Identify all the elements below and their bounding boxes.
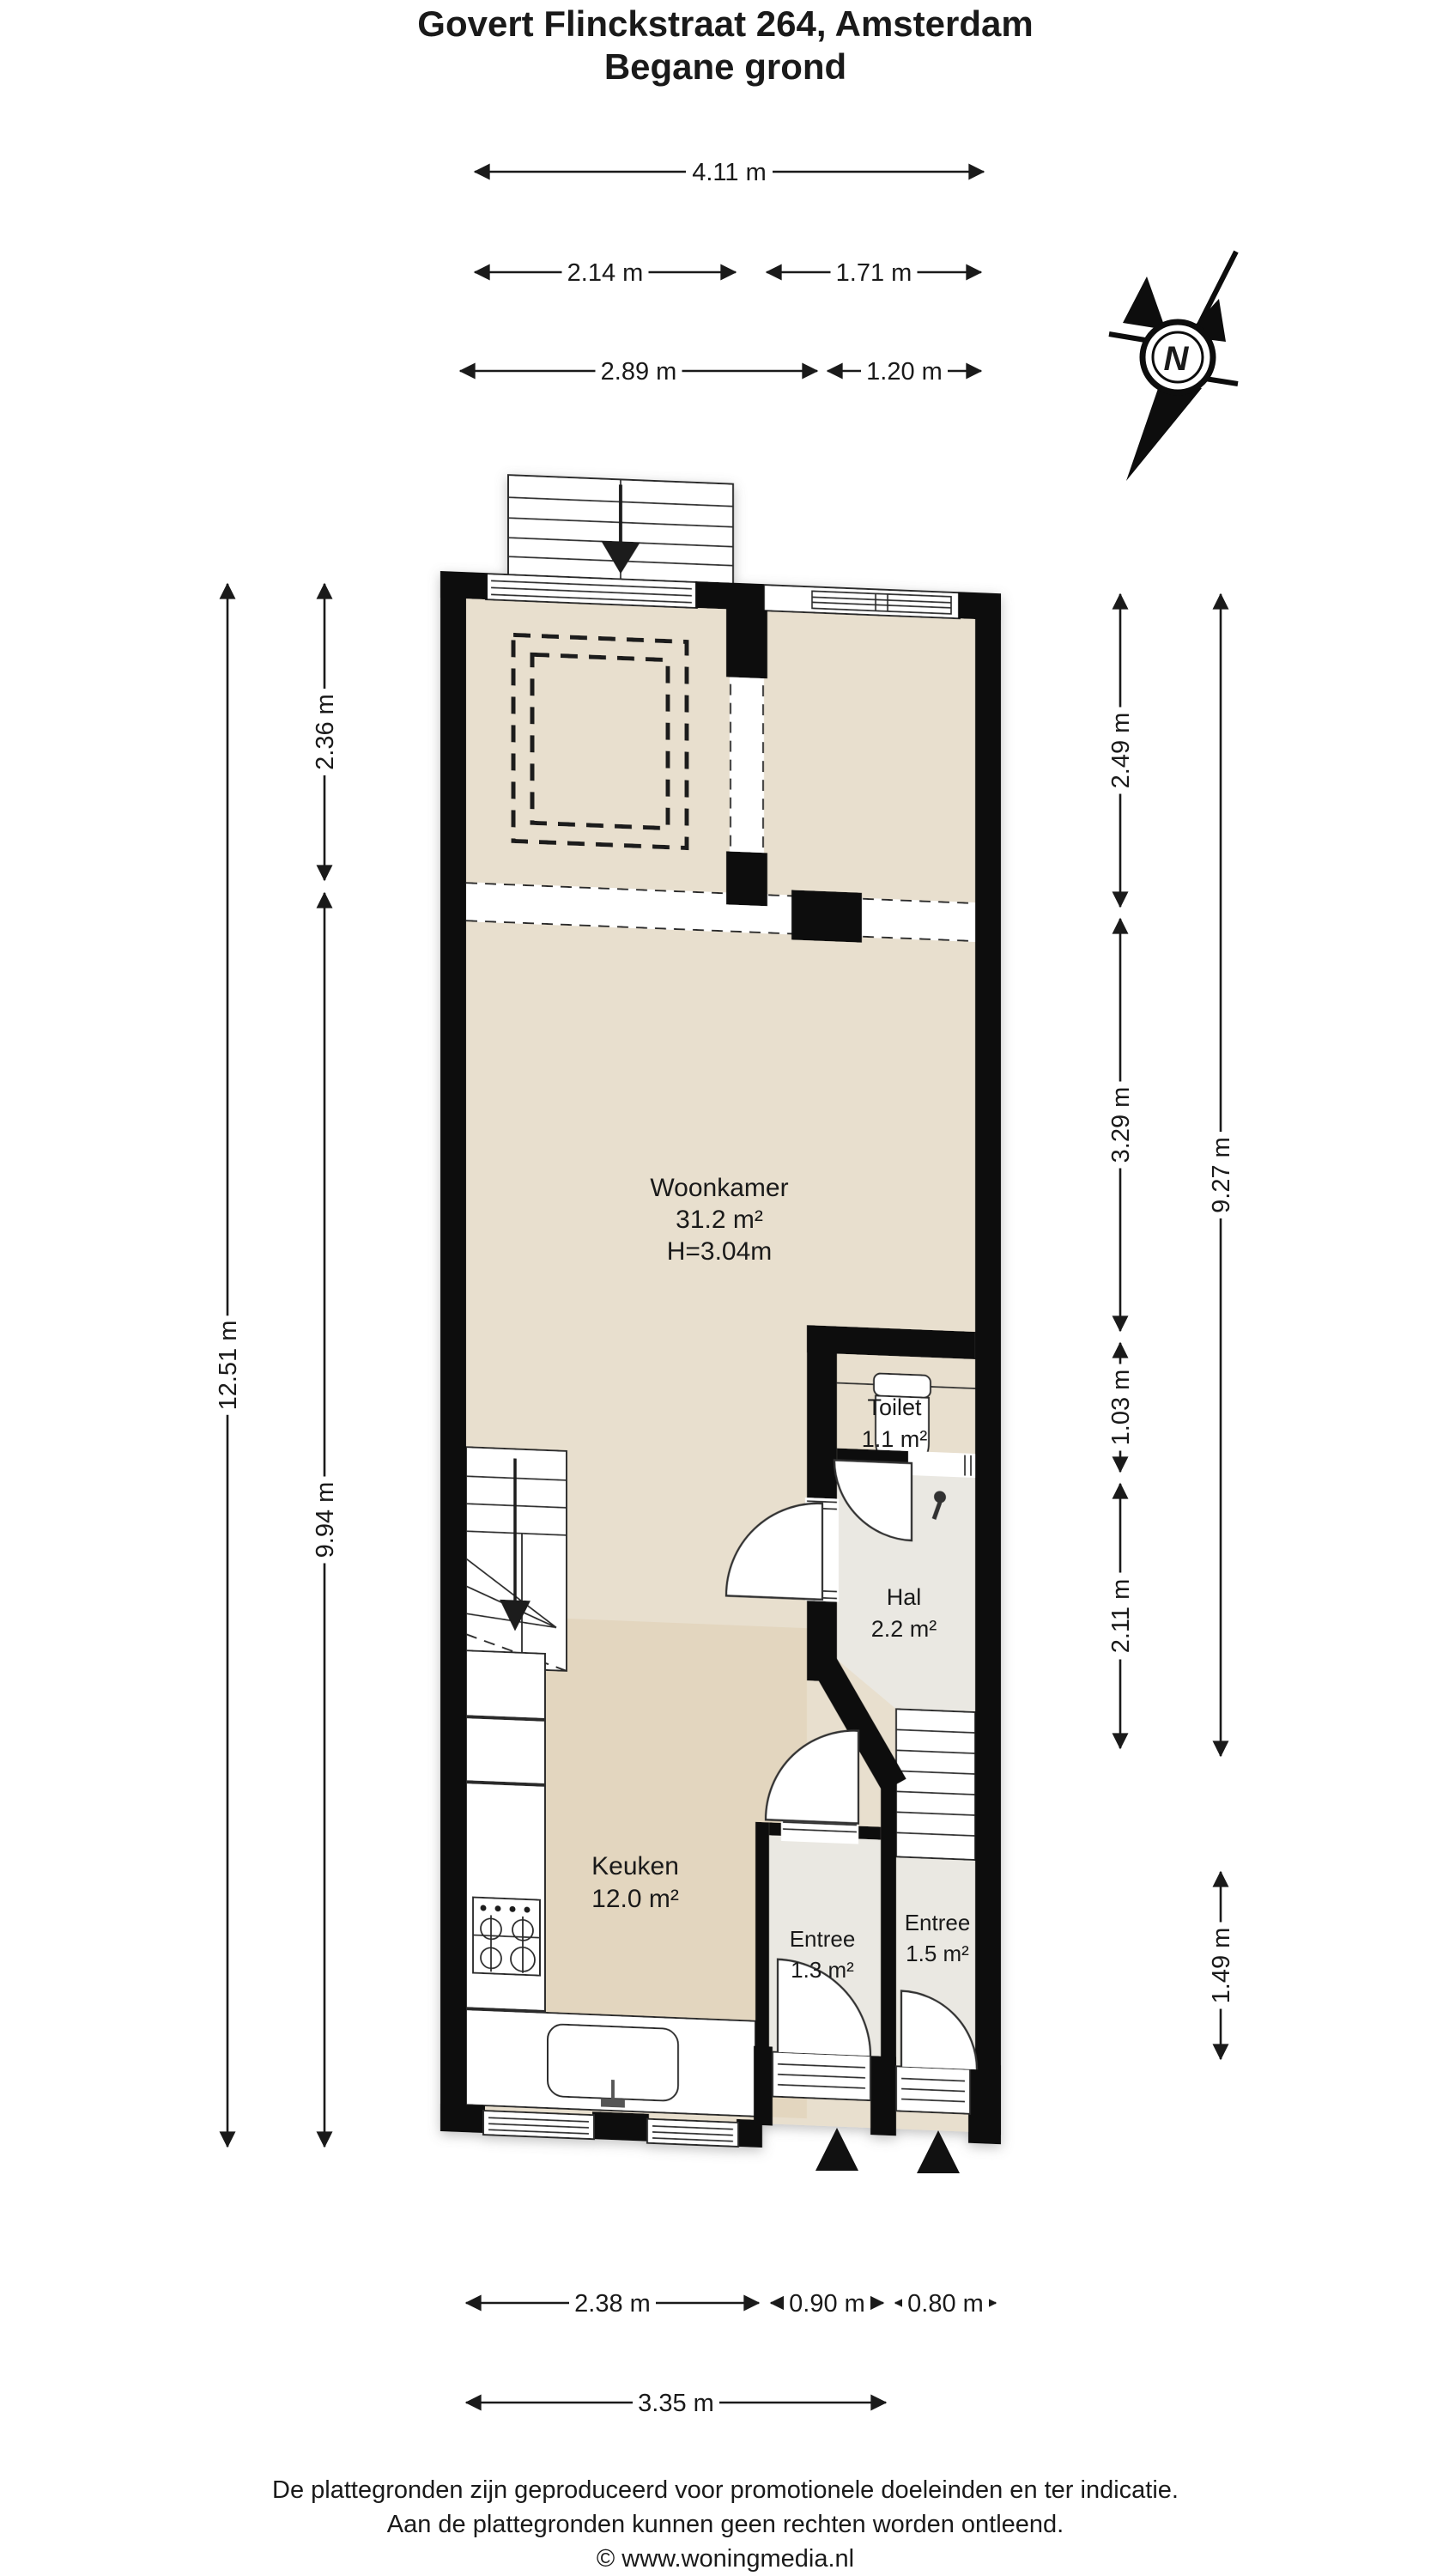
dimension-label: 2.89 m: [601, 358, 677, 386]
dimension-label: 3.29 m: [1107, 1087, 1135, 1163]
window-keuken-right: [647, 2119, 738, 2147]
room-label-line: 1.3 m²: [791, 1957, 854, 1983]
dimension-label: 4.11 m: [692, 159, 767, 186]
kitchen-stove: [473, 1898, 540, 1976]
dimension-bottom-entree-rechts: 0.80 m: [895, 2287, 996, 2318]
dimension-label: 2.38 m: [574, 2290, 651, 2318]
dimension-top-left-room: 2.14 m: [475, 257, 736, 288]
stairs-entree: [896, 1709, 975, 1860]
dimension-label: 1.20 m: [866, 358, 943, 386]
page-subtitle: Begane grond: [604, 46, 846, 87]
room-label-line: 1.5 m²: [906, 1941, 969, 1966]
footer-copyright: © www.woningmedia.nl: [597, 2545, 854, 2573]
compass-icon: N: [1109, 252, 1238, 481]
dimension-label: 2.14 m: [567, 259, 644, 287]
dimension-label: 2.36 m: [312, 694, 339, 770]
dimension-right-front: 2.49 m: [1105, 594, 1136, 907]
footer-disclaimer-2: Aan de plattegronden kunnen geen rechten…: [387, 2511, 1064, 2538]
room-label-line: 1.1 m²: [862, 1426, 928, 1452]
compass-north-label: N: [1164, 340, 1190, 378]
stairs-internal: [466, 1447, 567, 1671]
dimension-label: 1.71 m: [836, 259, 912, 287]
dimension-top-woonkamer: 2.89 m: [460, 355, 817, 386]
dimension-label: 1.49 m: [1208, 1928, 1235, 2004]
entrance-arrow-rechts: [917, 2130, 960, 2173]
dimension-bottom-keuken: 2.38 m: [466, 2287, 759, 2318]
dimension-right-entree: 1.49 m: [1205, 1872, 1236, 2059]
room-label-line: Hal: [887, 1584, 922, 1610]
dimension-right-total: 9.27 m: [1205, 594, 1236, 1756]
dimension-label: 9.27 m: [1208, 1137, 1235, 1213]
dimension-top-total: 4.11 m: [475, 156, 984, 187]
room-label-line: Toilet: [867, 1394, 922, 1420]
room-label-line: 12.0 m²: [591, 1885, 679, 1913]
entrance-arrow-links: [815, 2128, 858, 2171]
dimension-right-hal: 2.11 m: [1105, 1484, 1136, 1748]
room-label-line: Woonkamer: [650, 1174, 788, 1202]
dimension-left-main: 9.94 m: [309, 893, 340, 2147]
dimension-left-front: 2.36 m: [309, 584, 340, 880]
room-label-line: 2.2 m²: [871, 1616, 937, 1642]
room-label-line: H=3.04m: [667, 1237, 773, 1266]
floorplan-page: Govert Flinckstraat 264, Amsterdam Began…: [0, 0, 1449, 2576]
dimension-left-total: 12.51 m: [212, 584, 243, 2147]
kitchen-sink-counter: [466, 2009, 755, 2117]
dimension-label: 12.51 m: [215, 1321, 242, 1411]
room-label-line: Entree: [905, 1910, 971, 1935]
dimension-label: 2.49 m: [1107, 713, 1135, 789]
dimension-bottom-entree-links: 0.90 m: [771, 2287, 883, 2318]
room-label-line: Keuken: [591, 1852, 679, 1880]
dimension-right-toilet: 1.03 m: [1105, 1343, 1136, 1472]
dimension-label: 1.03 m: [1107, 1370, 1135, 1446]
window-keuken-left: [483, 2111, 594, 2139]
room-label-line: Entree: [790, 1926, 856, 1952]
floorplan-canvas: Govert Flinckstraat 264, Amsterdam Began…: [0, 0, 1449, 2576]
room-label-line: 31.2 m²: [676, 1206, 763, 1234]
dimension-right-woonkamer: 3.29 m: [1105, 919, 1136, 1331]
dimension-bottom-total: 3.35 m: [466, 2387, 886, 2418]
dimension-top-right-room: 1.71 m: [767, 257, 981, 288]
footer-disclaimer-1: De plattegronden zijn geproduceerd voor …: [272, 2476, 1179, 2504]
dimension-label: 0.80 m: [907, 2290, 984, 2318]
dimension-label: 3.35 m: [638, 2390, 714, 2417]
dimension-label: 0.90 m: [789, 2290, 865, 2318]
plan: [440, 472, 1001, 2157]
stairs-external: [508, 475, 733, 586]
dimension-top-toilet-strook: 1.20 m: [828, 355, 981, 386]
dimension-label: 9.94 m: [312, 1482, 339, 1558]
dimension-label: 2.11 m: [1107, 1579, 1135, 1654]
page-title: Govert Flinckstraat 264, Amsterdam: [417, 3, 1033, 44]
